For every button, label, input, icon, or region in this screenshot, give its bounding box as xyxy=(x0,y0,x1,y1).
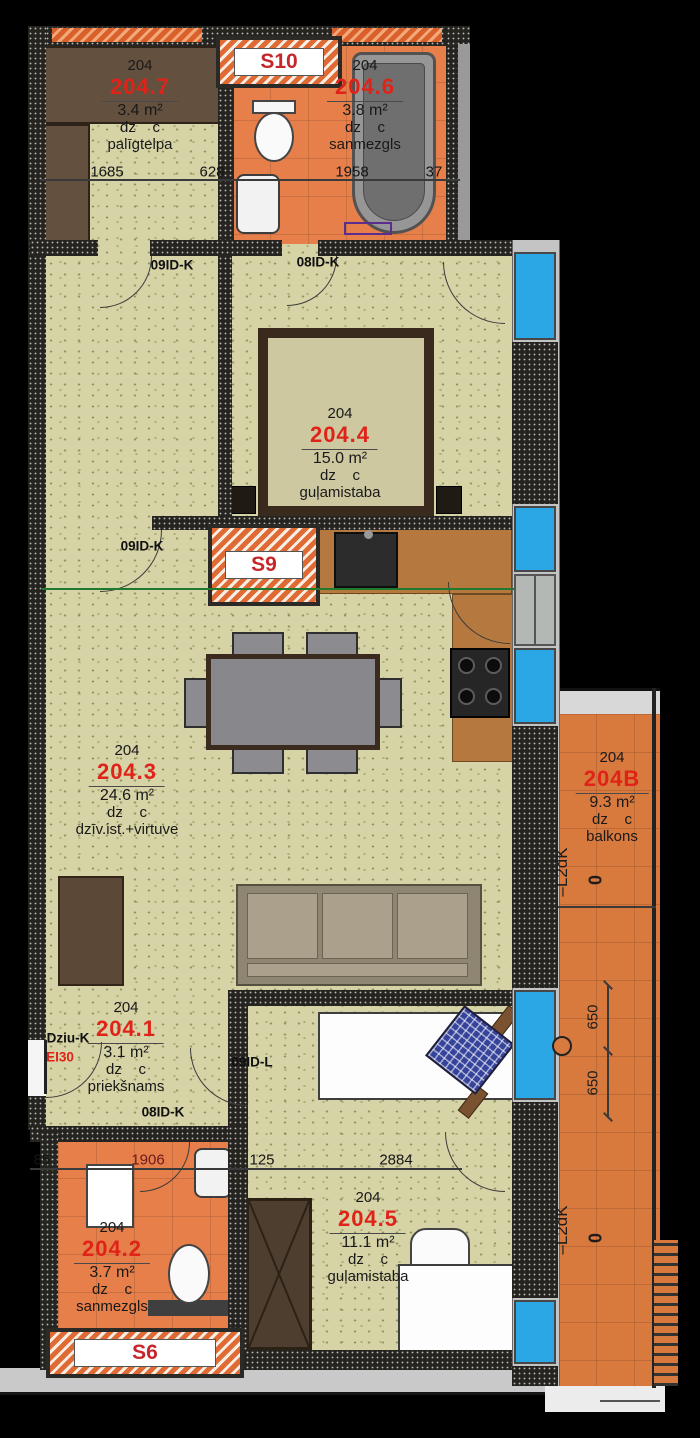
room-name: guļamistaba xyxy=(328,1269,409,1286)
room-label-204-3: 204 204.3 24.6 m² dz c dzīv.ist.+virtuve xyxy=(76,743,179,839)
balcony-door xyxy=(514,574,556,646)
room-label-204-4: 204 204.4 15.0 m² dz c guļamistaba xyxy=(300,406,381,502)
entry-door-label: Dziu-K xyxy=(47,1031,90,1046)
room-use: dz c xyxy=(576,812,649,829)
room-name: sanmezgls xyxy=(74,1299,150,1316)
burner xyxy=(458,688,475,705)
burner xyxy=(485,688,502,705)
wall xyxy=(218,256,232,518)
wall xyxy=(30,240,98,256)
room-apt: 204 xyxy=(102,58,178,75)
washer-outline xyxy=(344,222,392,235)
room-area: 3.7 m² xyxy=(74,1264,150,1282)
sofa xyxy=(236,884,482,986)
dining-chair xyxy=(184,678,208,728)
room-name: guļamistaba xyxy=(300,485,381,502)
door-label: 08ID-K xyxy=(297,255,340,270)
wall xyxy=(30,1126,230,1142)
floor-plan: S10 S9 S6 204 204.7 3.4 m² dz c palīgtel… xyxy=(0,0,700,1438)
dim-bottom-1: 85 xyxy=(34,1152,51,1169)
wall xyxy=(512,342,558,504)
room-label-204b: 204 204B 9.3 m² dz c balkons xyxy=(576,750,649,846)
sink xyxy=(194,1148,232,1198)
room-apt: 204 xyxy=(76,743,179,760)
room-apt: 204 xyxy=(88,1000,165,1017)
room-use: dz c xyxy=(76,805,179,822)
wall xyxy=(28,26,46,1130)
wall xyxy=(150,240,282,256)
room-use: dz c xyxy=(300,468,381,485)
dim-top-2: 628 xyxy=(199,164,224,181)
stove xyxy=(450,648,510,718)
window xyxy=(514,506,556,572)
level-value-lower: 0 xyxy=(586,1233,607,1243)
room-number: 204B xyxy=(576,767,649,794)
wall xyxy=(512,1102,558,1298)
room-name: dzīv.ist.+virtuve xyxy=(76,822,179,839)
landing-line xyxy=(600,1400,660,1402)
section-line-green xyxy=(42,588,514,590)
burner xyxy=(458,657,475,674)
toilet-bowl xyxy=(168,1244,210,1304)
wall xyxy=(228,990,516,1006)
room-name: balkons xyxy=(576,829,649,846)
room-use: dz c xyxy=(88,1062,165,1079)
dim-top-1: 1685 xyxy=(90,164,123,181)
room-apt: 204 xyxy=(328,1190,409,1207)
room-area: 11.1 m² xyxy=(328,1234,409,1252)
door-label: 09ID-L xyxy=(231,1055,272,1070)
dining-table xyxy=(206,654,380,750)
shaft-s9-label: S9 xyxy=(225,551,304,578)
door-label: 08ID-K xyxy=(142,1105,185,1120)
shaft-s6-label: S6 xyxy=(74,1339,217,1366)
toilet-bowl xyxy=(254,112,294,162)
room-label-204-1: 204 204.1 3.1 m² dz c priekšnams xyxy=(88,1000,165,1096)
shaft-s10: S10 xyxy=(216,36,342,88)
wall-gray xyxy=(458,44,470,242)
sink xyxy=(236,174,280,234)
window-handle xyxy=(552,1036,572,1056)
faucet xyxy=(364,530,373,539)
closet-left xyxy=(44,124,90,242)
room-use: dz c xyxy=(102,120,178,137)
room-number: 204.2 xyxy=(74,1237,150,1264)
dim-balcony-2: 650 xyxy=(585,1070,602,1095)
wall xyxy=(152,516,518,530)
room-name: sanmezgls xyxy=(327,137,403,154)
window xyxy=(514,252,556,340)
balcony-ladder-hatch xyxy=(654,1240,678,1386)
room-name: palīgtelpa xyxy=(102,137,178,154)
window xyxy=(514,1300,556,1364)
room-apt: 204 xyxy=(74,1220,150,1237)
fire-wall-hatch xyxy=(52,28,202,42)
burner xyxy=(485,657,502,674)
dim-balcony-1: 650 xyxy=(585,1004,602,1029)
balcony-landing xyxy=(545,1386,665,1412)
room-number: 204.3 xyxy=(89,760,165,787)
room-use: dz c xyxy=(327,120,403,137)
fire-rating-label: EI30 xyxy=(46,1050,74,1065)
window xyxy=(514,648,556,724)
shaft-s9: S9 xyxy=(208,524,320,606)
room-number: 204.4 xyxy=(302,423,378,450)
room-area: 3.1 m² xyxy=(88,1044,165,1062)
room-use: dz c xyxy=(328,1252,409,1269)
room-area: 3.8 m² xyxy=(327,102,403,120)
dining-chair xyxy=(306,748,358,774)
level-value-upper: 0 xyxy=(586,875,607,885)
room-number: 204.5 xyxy=(330,1207,406,1234)
room-number: 204.6 xyxy=(327,75,403,102)
sofa-cushion xyxy=(247,893,318,959)
room-area: 9.3 m² xyxy=(576,794,649,812)
room-label-204-5: 204 204.5 11.1 m² dz c guļamistaba xyxy=(328,1190,409,1286)
dining-chair xyxy=(378,678,402,728)
nightstand-left xyxy=(230,486,256,514)
room-apt: 204 xyxy=(576,750,649,767)
window xyxy=(514,990,556,1100)
wardrobe xyxy=(246,1198,312,1350)
room-area: 3.4 m² xyxy=(102,102,178,120)
level-mark-lower: –L2dK xyxy=(552,1205,572,1254)
nightstand-right xyxy=(436,486,462,514)
room-use: dz c xyxy=(74,1282,150,1299)
room-label-204-7: 204 204.7 3.4 m² dz c palīgtelpa xyxy=(102,58,178,154)
dim-bottom-4: 2884 xyxy=(379,1152,412,1169)
balcony-top-band xyxy=(558,688,660,717)
door-label: 09ID-K xyxy=(121,539,164,554)
dim-bottom-3: 125 xyxy=(249,1152,274,1169)
level-mark-upper: –L2dK xyxy=(552,847,572,896)
shaft-s6: S6 xyxy=(46,1328,244,1378)
dim-bottom-2: 1906 xyxy=(131,1152,164,1169)
dining-chair xyxy=(232,748,284,774)
room-number: 204.7 xyxy=(102,75,178,102)
kitchen-sink xyxy=(334,532,398,588)
room-apt: 204 xyxy=(300,406,381,423)
room-name: priekšnams xyxy=(88,1079,165,1096)
level-line xyxy=(558,906,656,908)
shaft-s10-label: S10 xyxy=(234,48,323,75)
dim-top-4: 37 xyxy=(426,164,443,181)
sofa-cushion xyxy=(397,893,468,959)
dim-top-3: 1958 xyxy=(335,164,368,181)
door-label: 09ID-K xyxy=(151,258,194,273)
wall xyxy=(512,1366,558,1386)
fire-wall-hatch xyxy=(332,28,442,42)
sofa-cushion xyxy=(322,893,393,959)
room-area: 15.0 m² xyxy=(300,450,381,468)
room-label-204-2: 204 204.2 3.7 m² dz c sanmezgls xyxy=(74,1220,150,1316)
room-apt: 204 xyxy=(327,58,403,75)
wall xyxy=(318,240,518,256)
armchair xyxy=(58,876,124,986)
room-number: 204.1 xyxy=(88,1017,164,1044)
sofa-seat-front xyxy=(247,963,468,977)
room-area: 24.6 m² xyxy=(76,787,179,805)
room-label-204-6: 204 204.6 3.8 m² dz c sanmezgls xyxy=(327,58,403,154)
